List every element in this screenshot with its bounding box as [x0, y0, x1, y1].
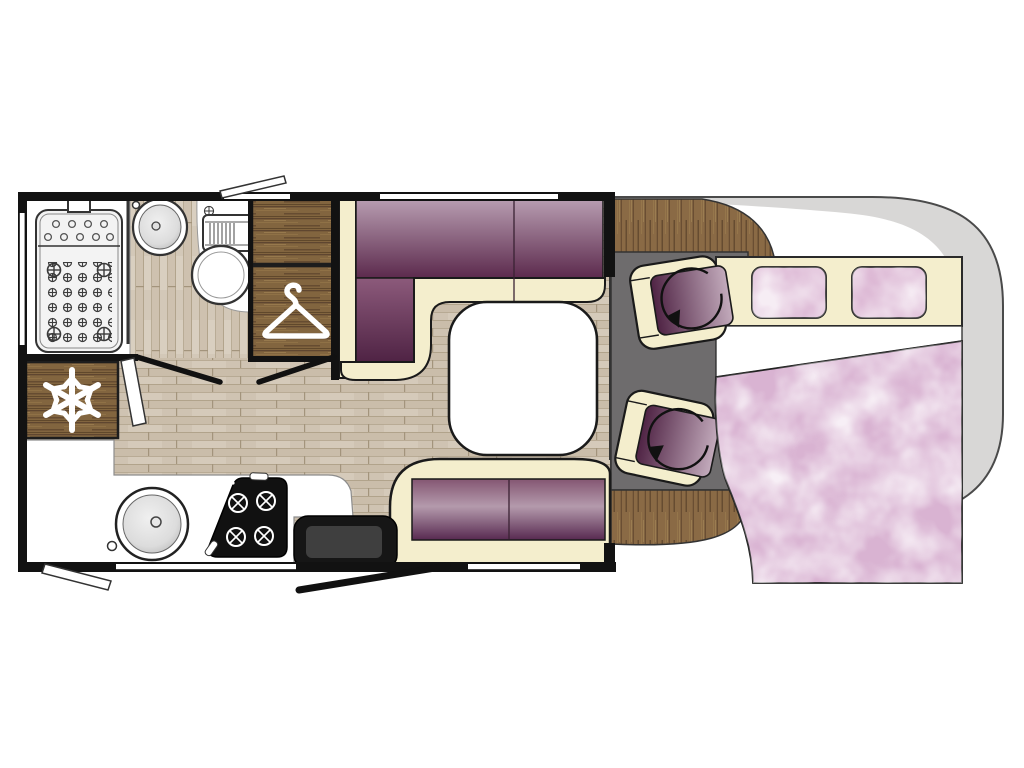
drain-icon [151, 517, 161, 527]
sofa-backrest-side [356, 278, 414, 362]
bed-pillow [852, 267, 926, 318]
floorplan-canvas [0, 0, 1024, 768]
drain-icon [152, 222, 160, 230]
window-bottom-2 [468, 564, 580, 569]
bench-seat [390, 459, 610, 566]
shower-tray [36, 210, 122, 352]
bed-duvet [715, 341, 962, 583]
washbasin [133, 199, 188, 255]
table [449, 302, 597, 455]
cab-section [611, 197, 1003, 583]
wall-wardrobe-divider [331, 192, 339, 380]
wall-washroom-divider [248, 196, 253, 362]
wardrobe [252, 266, 335, 360]
floorplan-svg [0, 0, 1024, 768]
wall-right-top [604, 192, 615, 277]
tap-icon [108, 542, 117, 551]
rotation-arrow-icon [628, 253, 736, 351]
window-top-2 [380, 194, 558, 199]
entry-step-tread [306, 526, 382, 558]
wall-washroom-bottom [24, 354, 138, 361]
window-bottom-1 [116, 564, 296, 569]
sofa-side-panel [339, 196, 356, 378]
swivel-seat-driver [628, 253, 736, 351]
bed-pillow [752, 267, 826, 318]
entry [294, 516, 397, 569]
window-left [20, 213, 25, 345]
wall-right-bottom [604, 543, 615, 572]
tap-icon [133, 202, 140, 209]
overhead-locker [252, 198, 335, 264]
sofa-backrest [356, 200, 603, 278]
